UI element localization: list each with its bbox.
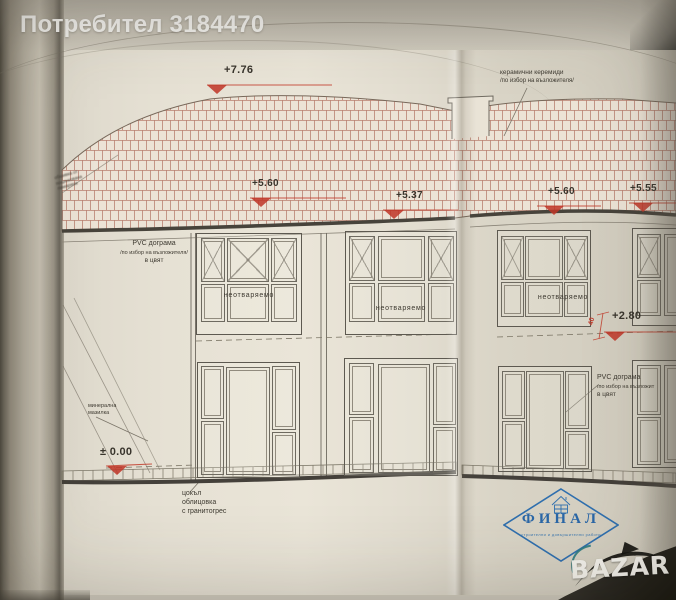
annotation-line: облицовка (182, 498, 266, 507)
window-pane (349, 283, 375, 322)
window-pane (565, 431, 589, 469)
window-pane (271, 238, 297, 282)
elevation-marker-eaves-right1: +5.60 (548, 186, 575, 197)
window-pane (565, 371, 589, 429)
window-assembly (196, 233, 302, 335)
elevation-triangle (251, 198, 271, 207)
window-pane (349, 236, 375, 281)
window-assembly (345, 231, 457, 335)
window-pane (349, 363, 374, 415)
annotation-line: /по избор на възложителя/ (108, 249, 200, 258)
elevation-marker-ground: ± 0.00 (100, 446, 132, 458)
window-pane (201, 284, 225, 322)
elevation-marker-280: +2.80 (612, 310, 641, 322)
window-pane (526, 371, 564, 469)
label-fixed-window: неотваряемо (366, 305, 436, 312)
annotation-pvc-left: PVC дограма /по избор на възложителя/ в … (108, 240, 200, 266)
annotation-plinth: цокъл облицовка с гранитогрес (182, 489, 266, 516)
label-fixed-window: неотваряемо (214, 292, 284, 299)
window-pane (501, 236, 524, 280)
label-fixed-window: неотваряемо (528, 294, 598, 301)
window-pane (378, 364, 430, 473)
window-pane (502, 421, 525, 469)
page-fold-shadow (446, 50, 476, 595)
annotation-line: /по избор на възложителя/ (500, 77, 650, 85)
window-assembly (497, 230, 591, 327)
annotation-plaster: минерална мазилка (88, 403, 148, 417)
annotation-line: керамични керемиди (500, 69, 650, 77)
right-edge-shadow (640, 0, 676, 600)
annotation-line: с гранитогрес (182, 507, 266, 516)
window-pane (227, 284, 269, 322)
window-pane (226, 367, 270, 475)
bazar-logo-text: BAZAR (569, 551, 671, 585)
annotation-line: PVC дограма (108, 240, 200, 249)
annotation-line: минерална (88, 403, 148, 410)
elevation-triangle (207, 85, 227, 94)
top-right-dark-corner (630, 0, 676, 50)
window-pane (378, 283, 425, 322)
window-pane (201, 421, 224, 475)
elevation-triangle (107, 466, 127, 475)
photo-of-architectural-drawing: керамични керемиди /по избор на възложит… (0, 0, 676, 600)
annotation-roof-material: керамични керемиди /по избор на възложит… (500, 69, 650, 85)
bazar-watermark-logo: BAZAR (567, 535, 676, 600)
elevation-marker-ridge: +7.76 (224, 64, 253, 76)
bottom-left-shadow (0, 590, 90, 600)
elevation-marker-eaves-mid: +5.37 (396, 190, 423, 201)
window-pane (525, 236, 563, 280)
window-pane (272, 432, 296, 475)
stamp-tagline: строителни и довършителни работи (513, 532, 609, 537)
stamp-title: ФИНАЛ (503, 511, 619, 528)
window-pane (272, 366, 296, 430)
elevation-triangle (544, 206, 564, 215)
window-pane (349, 417, 374, 473)
window-assembly (197, 362, 300, 478)
window-pane (378, 236, 425, 281)
window-pane (501, 282, 524, 317)
elevation-triangle (384, 210, 404, 219)
window-pane (564, 236, 588, 280)
elevation-triangle (605, 332, 625, 341)
window-assembly (498, 366, 592, 472)
window-pane (201, 238, 225, 282)
downpipe (321, 233, 327, 478)
window-pane (271, 284, 297, 322)
annotation-line: цокъл (182, 489, 266, 498)
window-pane (201, 366, 224, 419)
annotation-line: в цвят (108, 257, 200, 266)
wall-corner (191, 233, 196, 480)
user-watermark: Потребител 3184470 (20, 11, 264, 39)
window-assembly (344, 358, 458, 476)
window-pane (502, 371, 525, 419)
elevation-marker-eaves-left: +5.60 (252, 178, 279, 189)
window-pane (227, 238, 269, 282)
annotation-line: мазилка (88, 410, 148, 417)
